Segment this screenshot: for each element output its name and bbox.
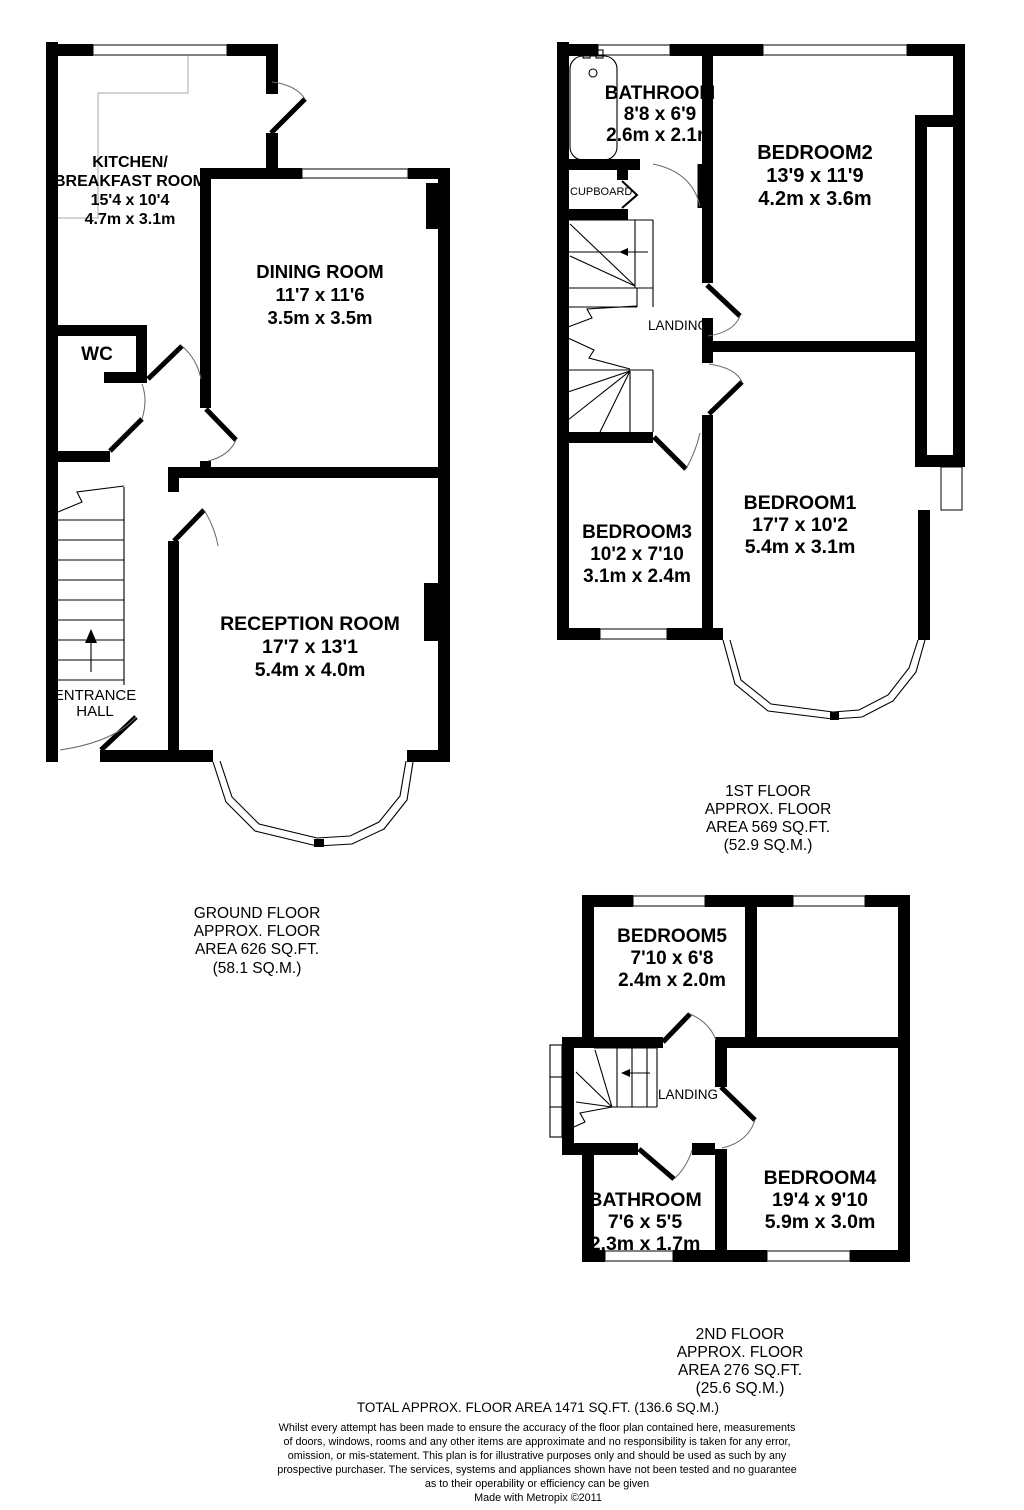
window [302,169,408,178]
svg-text:GROUND FLOOR: GROUND FLOOR [194,905,321,922]
bedroom4-dimensions-metric: 5.9m x 3.0m [765,1211,876,1233]
wall-segment [582,895,594,1048]
door-leaf [709,382,742,414]
bathroom2f-label: BATHROOM [588,1189,701,1211]
wall-segment [702,44,713,283]
bedroom5-label: BEDROOM5 [617,926,727,947]
wall-segment [562,1037,574,1155]
disclaimer-line: Whilst every attempt has been made to en… [279,1422,796,1434]
first-floor-plan: BATHROOM 8'8 x 6'9 2.6m x 2.1m CUPBOARD … [557,42,965,854]
ff-staircase-icon [568,220,653,432]
second-floor-plan: BEDROOM5 7'10 x 6'8 2.4m x 2.0m LANDING … [550,895,910,1397]
wall-segment [557,432,653,443]
footer: TOTAL APPROX. FLOOR AREA 1471 SQ.FT. (13… [277,1400,797,1504]
wall-segment [557,628,600,640]
svg-text:2ND FLOOR: 2ND FLOOR [696,1326,785,1343]
stairs-up-arrowhead [85,629,97,643]
cupboard-label: CUPBOARD [570,186,632,198]
second-floor-area-label: 2ND FLOOR APPROX. FLOOR AREA 276 SQ.FT. … [677,1326,804,1397]
disclaimer-line: as to their operability or efficiency ca… [425,1478,649,1490]
door-swing-arc [709,364,742,382]
wc-label: WC [81,344,113,365]
gf-walls [46,42,450,762]
svg-text:AREA 626 SQ.FT.: AREA 626 SQ.FT. [195,941,319,958]
wall-segment [200,168,302,179]
kitchen-dimensions-metric: 4.7m x 3.1m [85,211,176,228]
entrance-hall-label: ENTRANCE [54,687,137,704]
door-leaf [271,99,305,133]
ground-floor-plan: KITCHEN/ BREAKFAST ROOM 15'4 x 10'4 4.7m… [46,42,450,977]
bedroom2-label: BEDROOM2 [757,142,873,164]
ff-doors [622,164,742,469]
bedroom3-label: BEDROOM3 [582,522,692,543]
door-swing-arc [142,384,145,419]
gf-labels: KITCHEN/ BREAKFAST ROOM 15'4 x 10'4 4.7m… [54,154,400,720]
wall-segment [745,895,757,1048]
wall-segment [915,127,927,455]
kitchen-dimensions-imperial: 15'4 x 10'4 [91,192,170,209]
stairs-arrowhead [621,1069,630,1077]
door-swing-arc [204,510,218,546]
svg-text:1ST FLOOR: 1ST FLOOR [725,783,811,800]
entrance-hall-label2: HALL [76,703,114,720]
door-leaf [707,285,740,316]
wall-segment [670,44,763,56]
bathroom2f-dimensions-imperial: 7'6 x 5'5 [608,1211,682,1233]
landing1f-label: LANDING [648,318,708,333]
wall-segment [898,895,910,1262]
window [941,467,962,510]
wall-segment [168,467,450,478]
door-swing-arc [690,1014,716,1040]
door-swing-arc [60,717,136,750]
bedroom3-dimensions-imperial: 10'2 x 7'10 [590,544,684,565]
floorplan-page: KITCHEN/ BREAKFAST ROOM 15'4 x 10'4 4.7m… [0,0,1024,1510]
disclaimer-line: omission, or mis-statement. This plan is… [288,1450,787,1462]
kitchen-room-label2: BREAKFAST ROOM [54,173,206,190]
bathroom1f-dimensions-imperial: 8'8 x 6'9 [624,104,696,125]
wall-segment [46,325,147,336]
wall-segment [266,44,278,94]
window [633,896,705,906]
wall-segment [692,1143,715,1155]
bedroom5-dimensions-imperial: 7'10 x 6'8 [631,948,714,969]
bathroom2f-dimensions-metric: 2.3m x 1.7m [590,1233,701,1255]
wall-segment [915,115,965,127]
door-leaf [654,437,686,469]
wall-segment [168,541,179,762]
landing2f-label: LANDING [658,1087,718,1102]
window [598,45,670,55]
bedroom1-label: BEDROOM1 [744,492,857,514]
ff-labels: BATHROOM 8'8 x 6'9 2.6m x 2.1m CUPBOARD … [570,83,873,587]
chimney-breast [426,183,438,229]
door-swing-arc [182,346,201,379]
window [767,1251,850,1261]
gf-staircase-icon [58,486,124,685]
door-leaf [639,1149,674,1179]
window [600,629,667,639]
wall-segment [850,1250,910,1262]
svg-text:APPROX. FLOOR: APPROX. FLOOR [194,923,321,940]
door-leaf [148,346,182,379]
bedroom3-dimensions-metric: 3.1m x 2.4m [583,566,691,587]
wall-segment [46,42,58,762]
reception-room-label: RECEPTION ROOM [220,613,400,635]
door-leaf [206,409,236,440]
door-leaf [721,1087,755,1120]
bathroom1f-label: BATHROOM [605,83,715,104]
wall-segment [918,510,930,640]
bedroom4-label: BEDROOM4 [764,1167,877,1189]
svg-text:AREA 569 SQ.FT.: AREA 569 SQ.FT. [706,819,830,836]
window [793,896,865,906]
bedroom1-dimensions-metric: 5.4m x 3.1m [745,536,856,558]
stairwell-outline [550,1045,562,1137]
wall-segment [574,1037,663,1048]
wall-segment [407,750,450,762]
disclaimer-line: of doors, windows, rooms and any other i… [283,1436,790,1448]
door-leaf [663,1014,690,1042]
wall-segment [557,42,569,640]
ground-floor-area-label: GROUND FLOOR APPROX. FLOOR AREA 626 SQ.F… [194,905,321,977]
door-swing-arc [208,440,236,461]
bedroom2-dimensions-metric: 4.2m x 3.6m [758,188,871,210]
door-swing-arc [686,433,700,469]
reception-dimensions-imperial: 17'7 x 13'1 [262,636,358,658]
door-swing-arc [722,1120,755,1148]
metropix-credit: Made with Metropix ©2011 [474,1492,602,1504]
wall-segment [200,179,211,408]
svg-text:(52.9 SQ.M.): (52.9 SQ.M.) [724,837,813,854]
wall-segment [46,451,110,462]
svg-text:APPROX. FLOOR: APPROX. FLOOR [677,1344,804,1361]
door-swing-arc [674,1150,692,1179]
wall-segment [104,372,147,383]
bedroom2-dimensions-imperial: 13'9 x 11'9 [766,165,863,187]
wall-segment [915,455,965,467]
svg-text:AREA 276 SQ.FT.: AREA 276 SQ.FT. [678,1362,802,1379]
bedroom4-dimensions-imperial: 19'4 x 9'10 [772,1189,868,1211]
window [93,45,227,55]
wall-segment [617,159,628,180]
wall-segment [100,750,213,762]
wall-segment [438,168,450,762]
wall-segment [574,1143,638,1155]
bathroom1f-dimensions-metric: 2.6m x 2.1m [606,125,714,146]
svg-text:(58.1 SQ.M.): (58.1 SQ.M.) [213,960,302,977]
disclaimer-line: prospective purchaser. The services, sys… [277,1464,797,1476]
wall-segment [168,478,179,492]
door-leaf [174,510,204,541]
svg-text:(25.6 SQ.M.): (25.6 SQ.M.) [696,1380,785,1397]
wall-segment [582,895,633,907]
wall-segment [136,325,147,372]
wall-segment [46,44,93,56]
wall-segment [727,1037,910,1048]
door-leaf [110,419,142,451]
gf-bay-window [213,761,413,847]
wall-segment [702,341,915,352]
wall-segment [557,44,598,56]
wall-segment [715,1149,727,1262]
ff-bay-window [723,640,925,720]
reception-dimensions-metric: 5.4m x 4.0m [255,659,366,681]
first-floor-area-label: 1ST FLOOR APPROX. FLOOR AREA 569 SQ.FT. … [705,783,832,854]
total-area-label: TOTAL APPROX. FLOOR AREA 1471 SQ.FT. (13… [357,1400,719,1415]
dining-dimensions-imperial: 11'7 x 11'6 [275,284,364,305]
wall-segment [953,44,965,467]
bedroom1-dimensions-imperial: 17'7 x 10'2 [752,514,848,536]
kitchen-room-label: KITCHEN/ [92,154,168,171]
dining-dimensions-metric: 3.5m x 3.5m [268,307,373,328]
door-swing-arc [653,164,700,206]
chimney-breast [424,583,440,641]
window [763,45,907,55]
bedroom5-dimensions-metric: 2.4m x 2.0m [618,970,726,991]
wall-segment [46,750,58,762]
wall-segment [715,1037,727,1087]
wall-segment [702,415,713,640]
wall-segment [557,209,628,220]
dining-room-label: DINING ROOM [256,261,383,282]
wall-segment [667,628,723,640]
stairs-arrowhead [619,248,628,256]
floorplan-canvas: KITCHEN/ BREAKFAST ROOM 15'4 x 10'4 4.7m… [0,0,1024,1510]
svg-text:APPROX. FLOOR: APPROX. FLOOR [705,801,832,818]
